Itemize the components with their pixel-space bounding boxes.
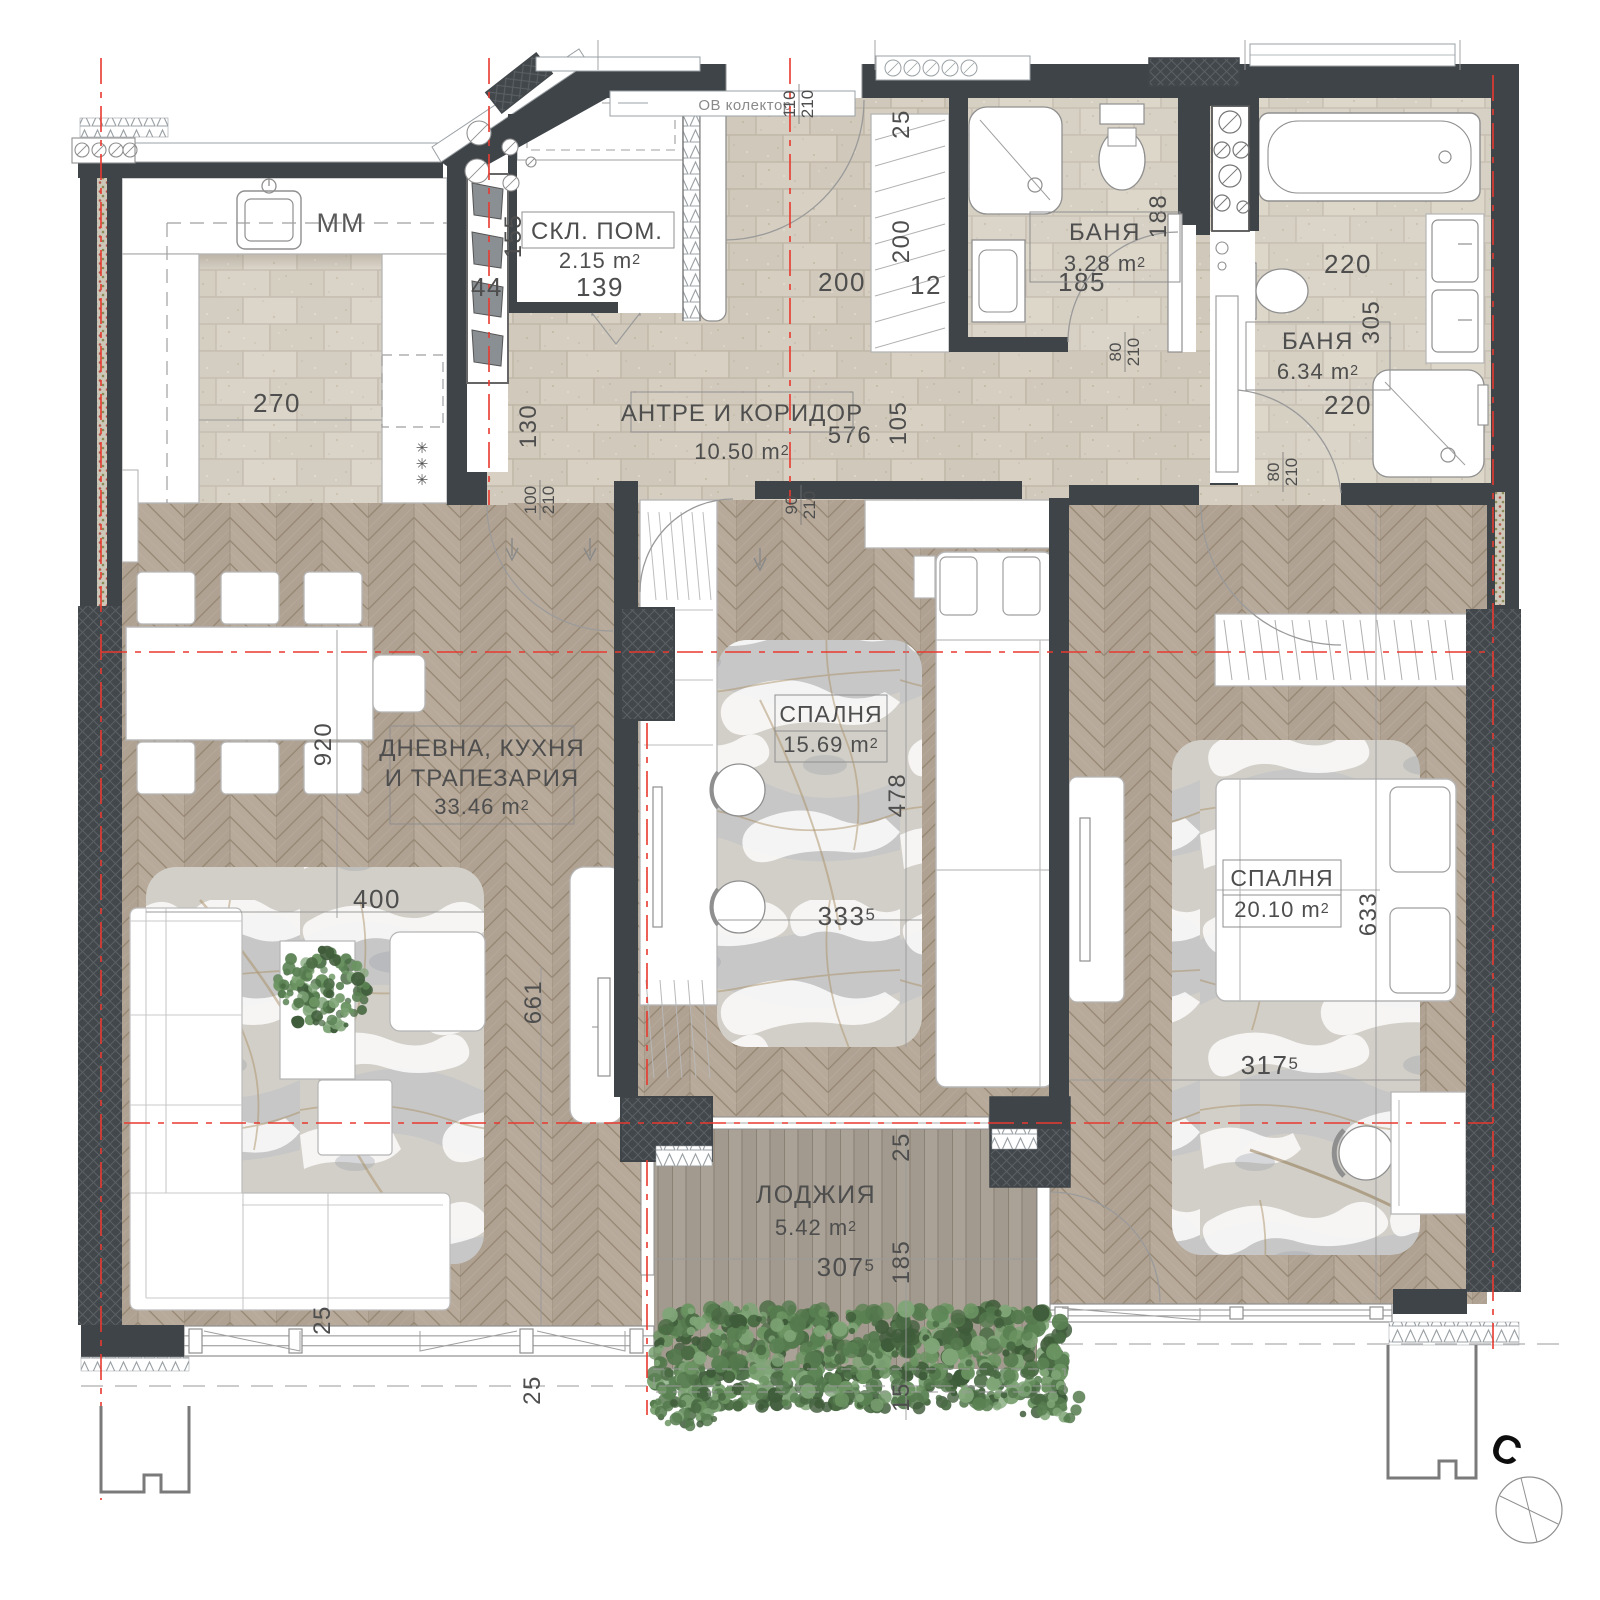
svg-text:210: 210 <box>539 486 558 514</box>
svg-text:210: 210 <box>798 90 817 118</box>
svg-text:661: 661 <box>520 980 547 1025</box>
svg-text:220: 220 <box>1324 249 1372 279</box>
svg-text:139: 139 <box>576 272 624 302</box>
svg-text:25: 25 <box>888 109 915 139</box>
svg-text:33.46 m2: 33.46 m2 <box>434 794 529 819</box>
svg-text:СПАЛНЯ: СПАЛНЯ <box>779 701 882 727</box>
svg-text:80: 80 <box>1264 463 1283 482</box>
svg-text:20.10 m2: 20.10 m2 <box>1234 897 1329 922</box>
svg-text:25: 25 <box>309 1305 336 1335</box>
svg-text:✳: ✳ <box>416 472 429 489</box>
svg-text:15.69 m2: 15.69 m2 <box>783 732 878 757</box>
svg-text:3.28 m2: 3.28 m2 <box>1064 251 1146 276</box>
svg-text:100: 100 <box>521 486 540 514</box>
svg-text:ДНЕВНА, КУХНЯ: ДНЕВНА, КУХНЯ <box>379 735 584 762</box>
svg-text:105: 105 <box>885 401 912 446</box>
svg-text:ОВ колектор: ОВ колектор <box>698 97 791 114</box>
svg-text:478: 478 <box>884 773 911 818</box>
svg-text:СПАЛНЯ: СПАЛНЯ <box>1230 865 1333 891</box>
svg-text:270: 270 <box>253 388 301 418</box>
svg-text:25: 25 <box>519 1375 546 1405</box>
svg-text:15: 15 <box>888 1382 915 1412</box>
svg-text:400: 400 <box>353 884 401 914</box>
svg-text:БАНЯ: БАНЯ <box>1069 219 1141 246</box>
svg-text:220: 220 <box>1324 390 1372 420</box>
svg-text:44: 44 <box>471 272 503 302</box>
svg-text:АНТРЕ И КОРИДОР: АНТРЕ И КОРИДОР <box>621 400 863 427</box>
svg-text:210: 210 <box>800 491 819 519</box>
svg-text:90: 90 <box>782 496 801 515</box>
svg-text:200: 200 <box>818 267 866 297</box>
svg-text:210: 210 <box>1124 338 1143 366</box>
svg-text:MM: MM <box>317 208 366 238</box>
svg-text:5.42 m2: 5.42 m2 <box>775 1215 857 1240</box>
svg-text:✳: ✳ <box>416 456 429 473</box>
svg-text:✳: ✳ <box>416 440 429 457</box>
svg-text:920: 920 <box>310 722 337 767</box>
svg-text:633: 633 <box>1355 892 1382 937</box>
svg-text:2.15 m2: 2.15 m2 <box>559 248 641 273</box>
svg-text:130: 130 <box>515 404 542 449</box>
svg-text:155: 155 <box>500 214 527 259</box>
svg-text:6.34 m2: 6.34 m2 <box>1277 359 1359 384</box>
svg-text:БАНЯ: БАНЯ <box>1282 328 1354 355</box>
svg-text:110: 110 <box>780 90 799 117</box>
svg-text:210: 210 <box>1282 458 1301 486</box>
svg-text:185: 185 <box>888 1240 915 1285</box>
svg-text:10.50 m2: 10.50 m2 <box>694 439 789 464</box>
svg-text:188: 188 <box>1145 194 1172 239</box>
svg-text:ЛОДЖИЯ: ЛОДЖИЯ <box>756 1181 876 1209</box>
svg-text:80: 80 <box>1106 343 1125 362</box>
svg-text:И ТРАПЕЗАРИЯ: И ТРАПЕЗАРИЯ <box>385 765 580 792</box>
svg-text:200: 200 <box>888 219 915 264</box>
svg-text:12: 12 <box>910 270 942 300</box>
svg-text:СКЛ. ПОМ.: СКЛ. ПОМ. <box>531 218 663 245</box>
svg-text:25: 25 <box>888 1132 915 1162</box>
